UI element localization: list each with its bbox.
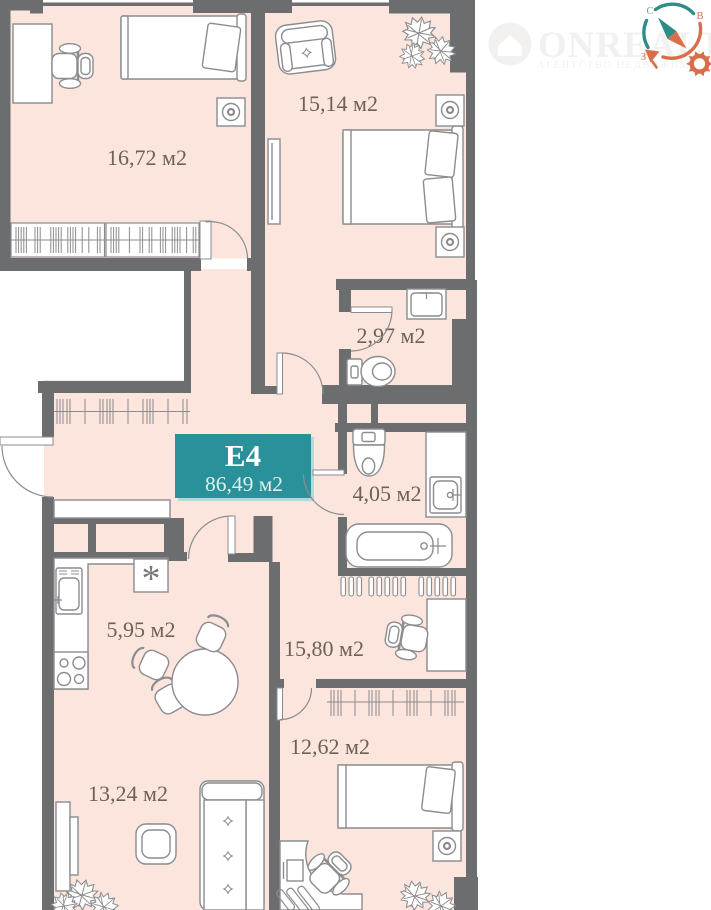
svg-text:13,24 м2: 13,24 м2 bbox=[88, 781, 168, 806]
svg-text:2,97 м2: 2,97 м2 bbox=[357, 323, 426, 348]
svg-text:*: * bbox=[142, 558, 161, 600]
svg-text:АГЕНТСТВО НЕДВИЖИМОСТИ: АГЕНТСТВО НЕДВИЖИМОСТИ bbox=[537, 60, 711, 71]
svg-text:З: З bbox=[641, 52, 646, 63]
svg-text:15,80 м2: 15,80 м2 bbox=[284, 636, 364, 661]
svg-text:16,72 м2: 16,72 м2 bbox=[107, 145, 187, 170]
svg-text:Е4: Е4 bbox=[225, 438, 261, 473]
svg-text:4,05 м2: 4,05 м2 bbox=[353, 481, 422, 506]
svg-text:15,14 м2: 15,14 м2 bbox=[298, 91, 378, 116]
svg-text:С: С bbox=[646, 6, 653, 17]
svg-text:5,95 м2: 5,95 м2 bbox=[107, 617, 176, 642]
svg-text:86,49 м2: 86,49 м2 bbox=[205, 472, 283, 496]
svg-text:12,62 м2: 12,62 м2 bbox=[290, 734, 370, 759]
svg-text:В: В bbox=[696, 11, 703, 22]
